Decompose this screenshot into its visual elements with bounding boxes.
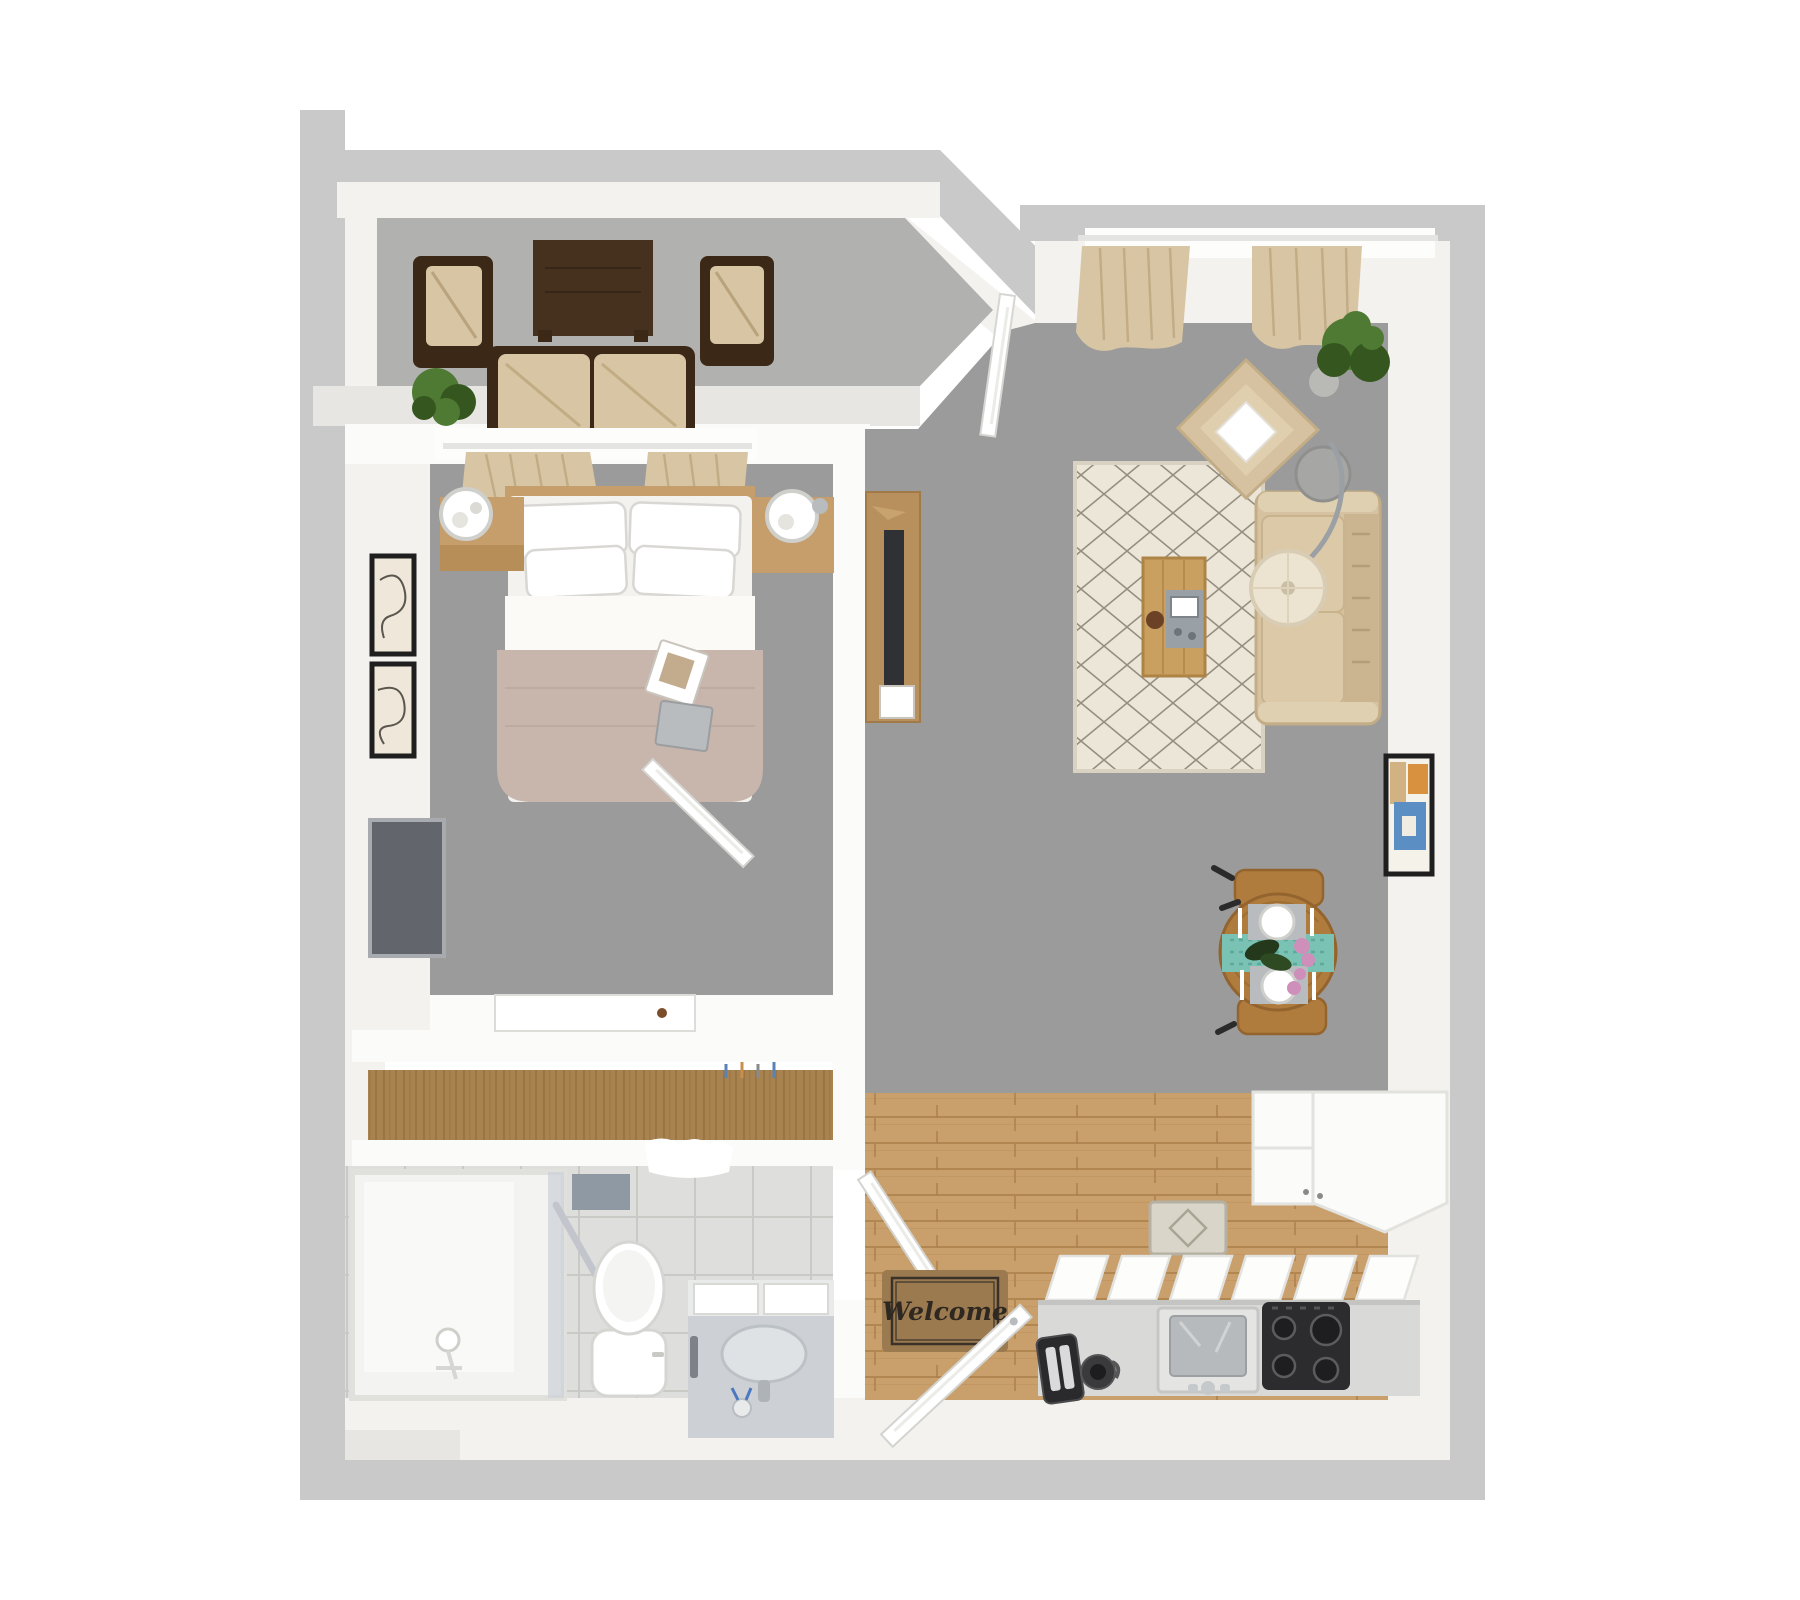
- wicker-loveseat: [487, 346, 695, 442]
- nightstand-left-drawer: [440, 545, 524, 571]
- magazine-stack: [880, 686, 914, 718]
- faucet-base: [1201, 1381, 1215, 1395]
- closet-wood-shelf: [368, 1070, 833, 1140]
- coffee-table: [1143, 558, 1205, 676]
- vanity-sink: [688, 1280, 834, 1438]
- vanity-door-left: [694, 1284, 758, 1314]
- interior-wall-bath-hall: [833, 1300, 865, 1398]
- seat-cushion-bottom: [1262, 612, 1344, 704]
- coaster: [1146, 611, 1164, 629]
- dark-wood-table: [533, 240, 653, 342]
- wall-art: [1386, 756, 1432, 874]
- apartment-floor-plan: Welcome: [0, 0, 1800, 1600]
- kitchen-rug: [1150, 1202, 1226, 1254]
- towels: [645, 1138, 733, 1178]
- cabinet-handle: [1303, 1189, 1309, 1195]
- double-bed: [497, 496, 763, 802]
- place-setting-top: [1240, 904, 1312, 940]
- sofa-arm-bottom: [1258, 702, 1378, 722]
- wall-hook-panel: [572, 1174, 630, 1210]
- desk-knob: [657, 1008, 667, 1018]
- framed-art-bottom: [372, 664, 414, 756]
- wicker-armchair-left: [413, 256, 493, 368]
- closet-top-shelf: [352, 1030, 833, 1062]
- kitchen-sink: [1158, 1308, 1258, 1395]
- wall-bottom: [300, 1460, 1485, 1500]
- wall-right: [1450, 205, 1485, 1500]
- interior-wall-bedroom-living: [833, 425, 865, 1170]
- cooktop: [1262, 1302, 1350, 1390]
- cup: [812, 498, 828, 514]
- upper-cabinet-corner: [1313, 1092, 1447, 1232]
- white-desk: [495, 995, 695, 1031]
- wall-left: [300, 110, 345, 1500]
- console-tv: [884, 530, 904, 694]
- wicker-armchair-right: [700, 256, 774, 366]
- sheet-fold: [505, 596, 755, 652]
- sink-basin: [722, 1326, 806, 1382]
- closet: [352, 1030, 833, 1166]
- toilet: [592, 1242, 666, 1396]
- sofa-back: [1344, 514, 1378, 702]
- bottom-left-notch: [345, 1430, 460, 1460]
- balcony-top-face: [337, 182, 940, 218]
- closet-bottom-shelf: [352, 1140, 833, 1166]
- tv-console: [866, 492, 920, 722]
- wall-tv: [370, 820, 444, 956]
- tray-box: [1171, 597, 1198, 617]
- floor-plan-canvas: Welcome: [0, 0, 1800, 1600]
- vanity-door-right: [764, 1284, 828, 1314]
- faucet: [758, 1380, 770, 1402]
- framed-art-top: [372, 556, 414, 654]
- flush-button: [652, 1352, 664, 1357]
- welcome-mat-text: Welcome: [882, 1297, 1008, 1326]
- cabinet-handle: [1317, 1193, 1323, 1199]
- towel-bar: [690, 1336, 698, 1378]
- toaster: [1036, 1334, 1085, 1405]
- sphere-lamp-left: [441, 489, 491, 539]
